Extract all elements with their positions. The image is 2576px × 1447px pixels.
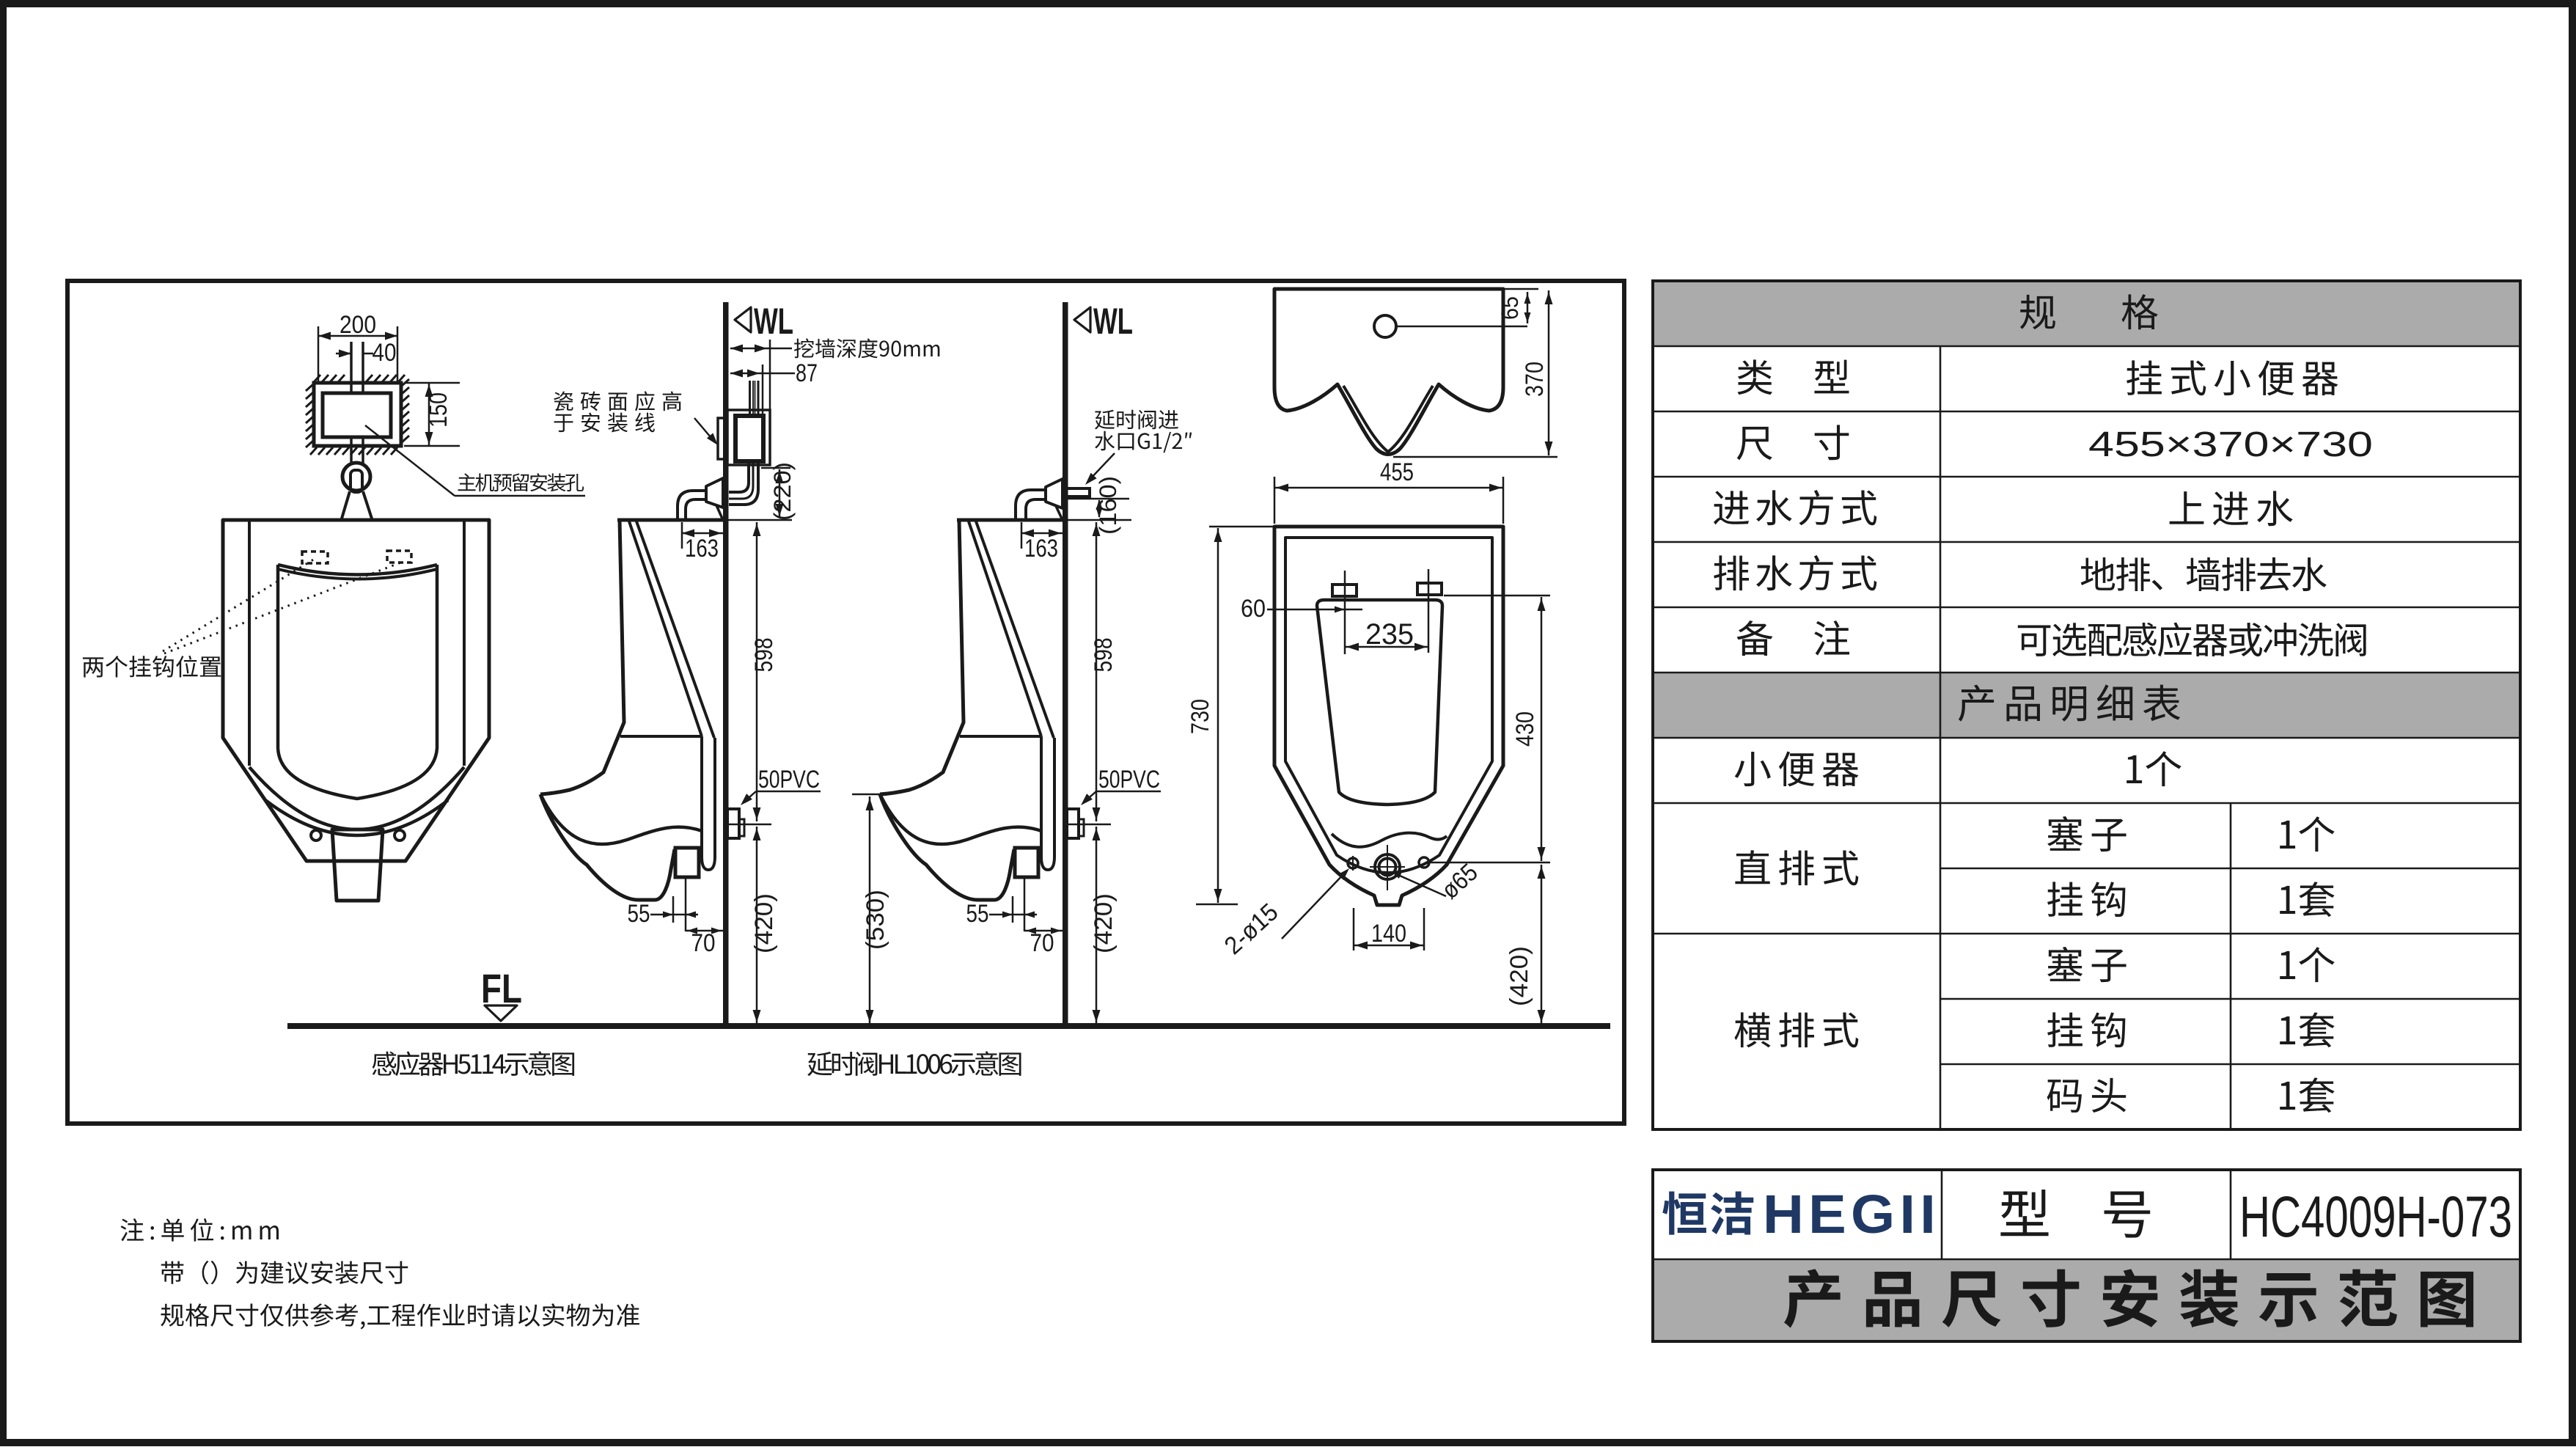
- svg-text:55: 55: [628, 900, 650, 928]
- svg-text:730: 730: [1186, 699, 1214, 734]
- svg-text:50PVC: 50PVC: [758, 766, 820, 794]
- svg-text:HEGII: HEGII: [1763, 1184, 1940, 1245]
- svg-text:(420): (420): [750, 893, 778, 953]
- svg-text:140: 140: [1371, 920, 1406, 948]
- svg-text:163: 163: [685, 535, 719, 563]
- svg-text:455×370×730: 455×370×730: [2088, 425, 2373, 464]
- svg-text:(420): (420): [1090, 893, 1118, 953]
- svg-text:70: 70: [691, 929, 716, 957]
- svg-text:598: 598: [750, 638, 778, 673]
- svg-text:200: 200: [340, 311, 376, 339]
- svg-text:370: 370: [1521, 362, 1549, 397]
- svg-text:235: 235: [1365, 618, 1414, 651]
- svg-text:163: 163: [1024, 535, 1058, 563]
- svg-text:50PVC: 50PVC: [1098, 766, 1160, 794]
- svg-text:60: 60: [1241, 595, 1266, 623]
- svg-text:65: 65: [1497, 296, 1523, 320]
- svg-text:598: 598: [1090, 638, 1118, 673]
- svg-text:40: 40: [373, 339, 397, 367]
- svg-text:WL: WL: [754, 301, 793, 342]
- svg-text:150: 150: [425, 392, 452, 428]
- svg-text:455: 455: [1380, 458, 1414, 486]
- svg-text:430: 430: [1511, 711, 1539, 747]
- svg-text:87: 87: [796, 359, 818, 387]
- svg-text:HC4009H-073: HC4009H-073: [2239, 1184, 2512, 1249]
- svg-text:70: 70: [1030, 929, 1054, 957]
- svg-text:(530): (530): [862, 890, 889, 950]
- svg-text:(160): (160): [1095, 476, 1121, 535]
- svg-text:WL: WL: [1093, 301, 1133, 342]
- svg-text:55: 55: [966, 900, 989, 928]
- svg-text:(420): (420): [1505, 946, 1533, 1006]
- svg-text:(220): (220): [769, 462, 796, 521]
